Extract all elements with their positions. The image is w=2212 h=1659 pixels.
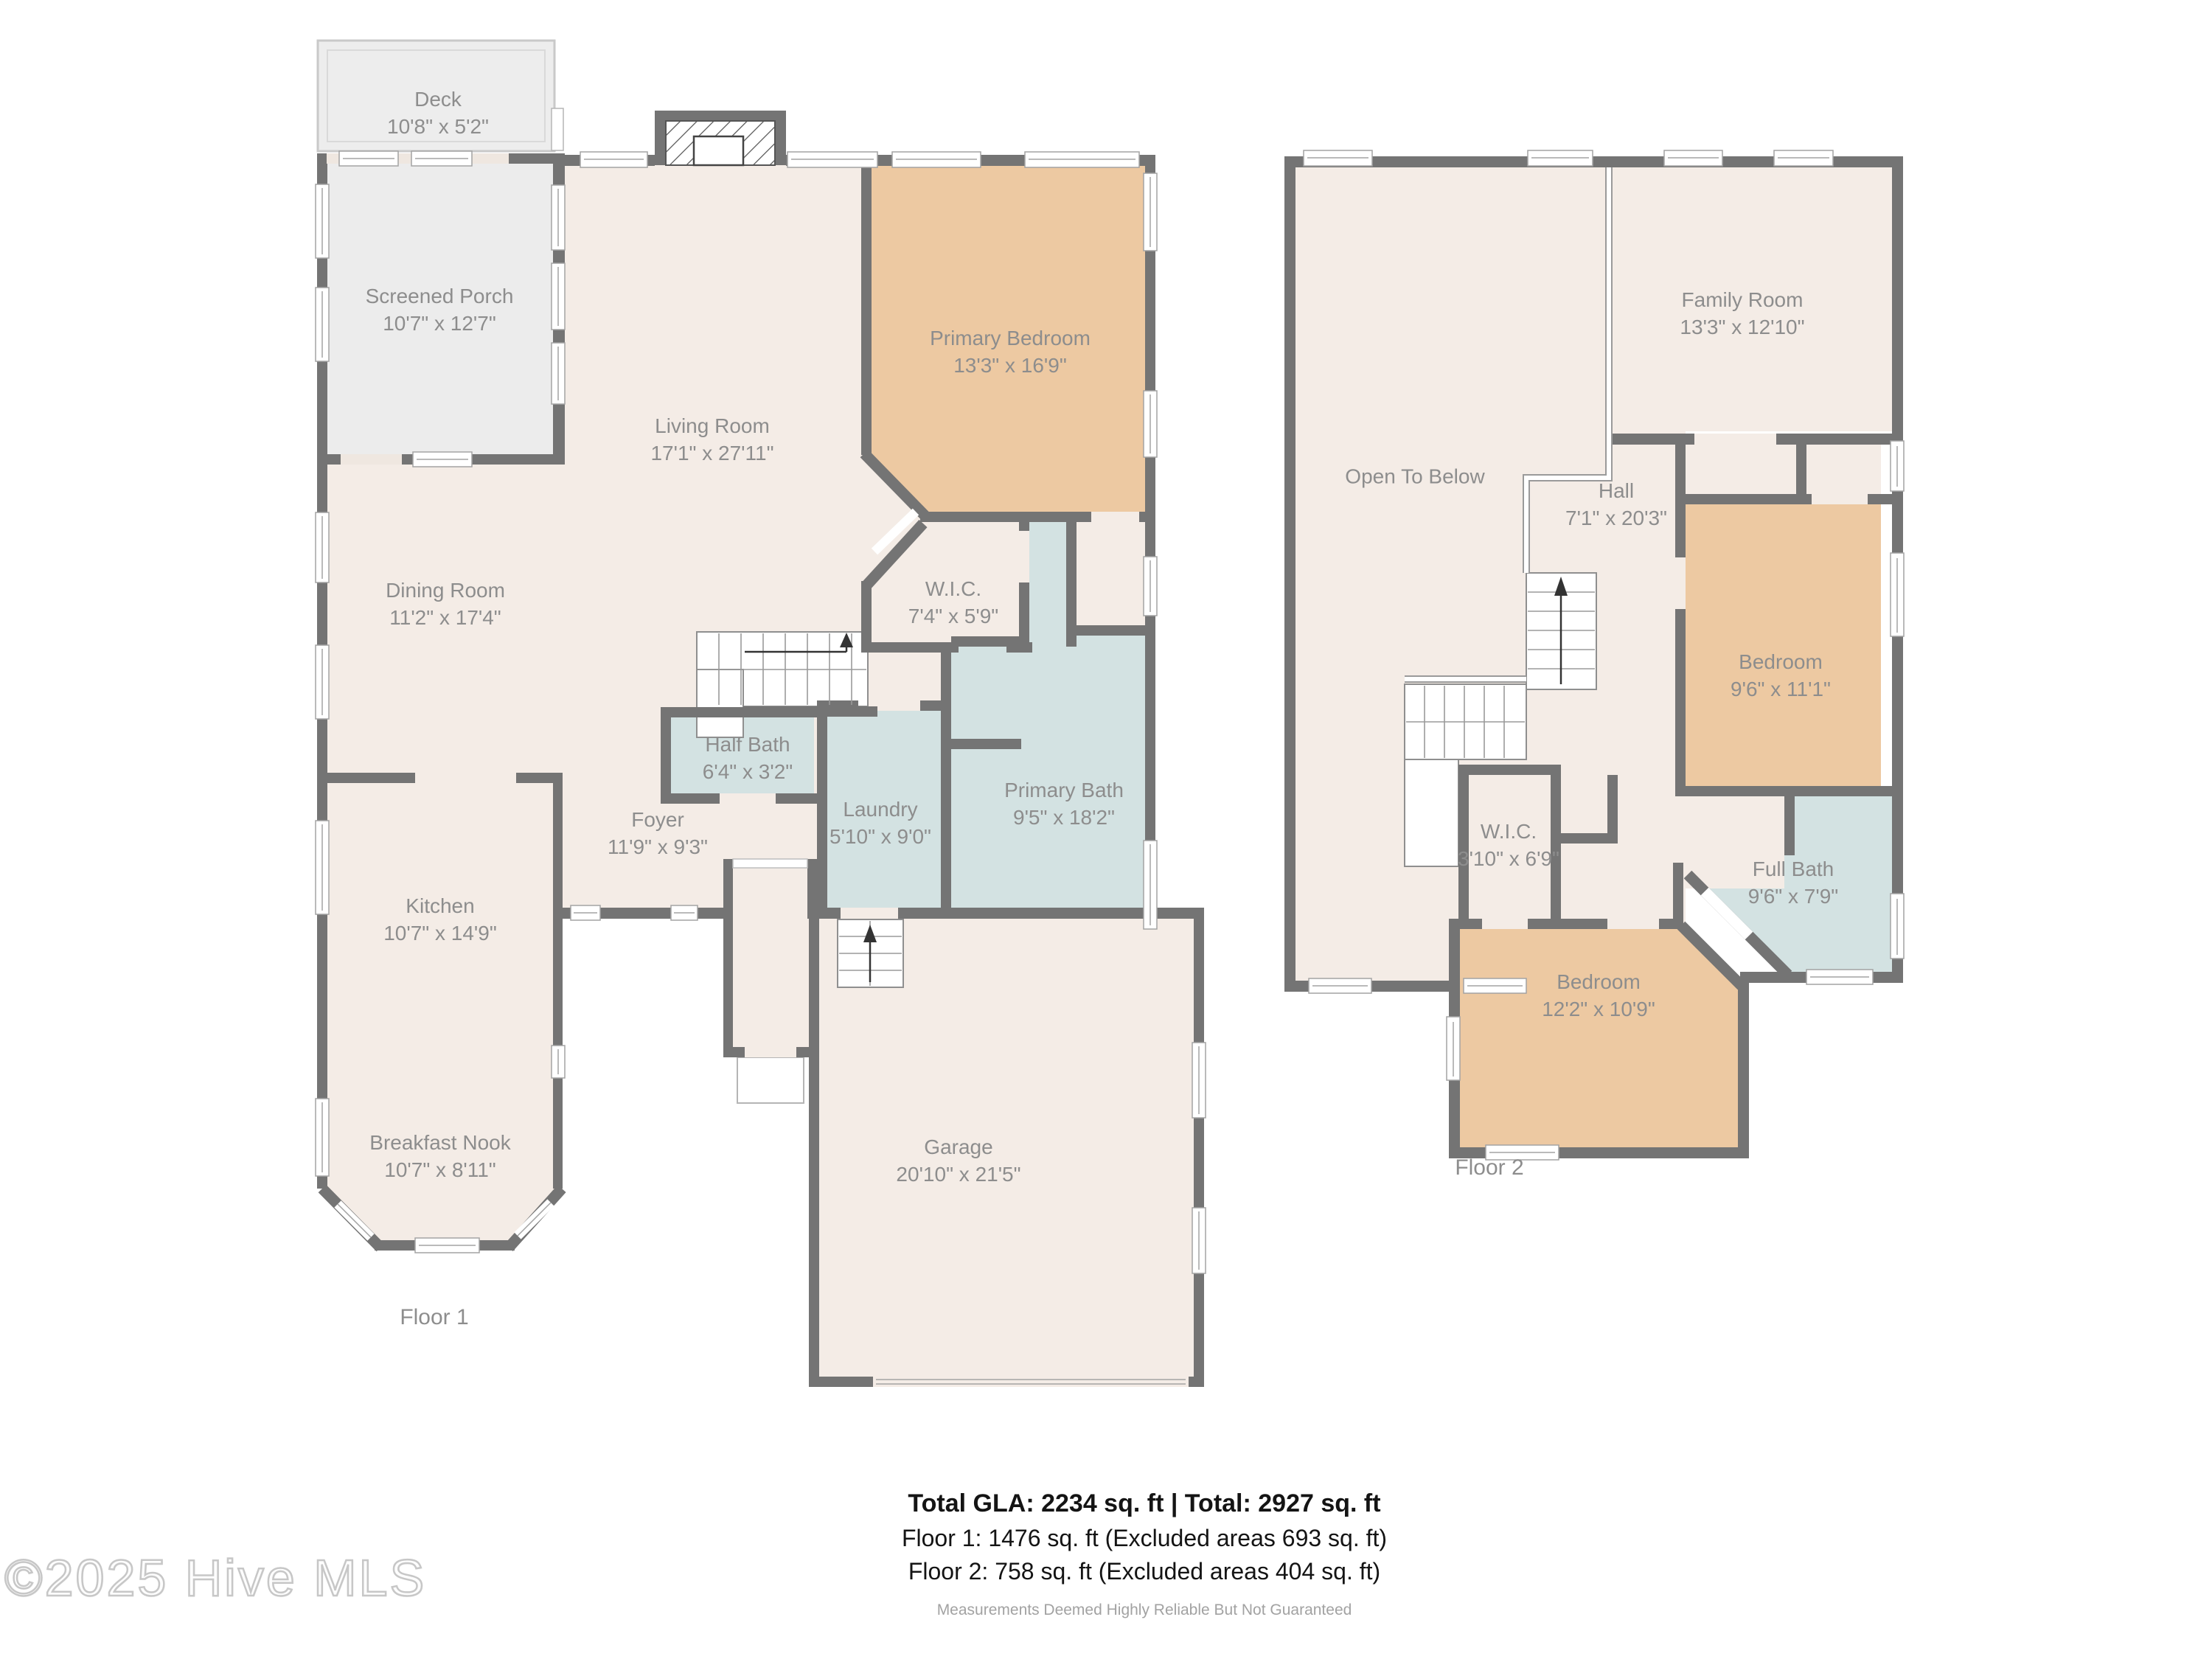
room-label-screened-porch: Screened Porch10'7" x 12'7" [366,283,514,338]
room-label-wic-floor2: W.I.C.3'10" x 6'9" [1458,818,1559,873]
room-label-deck: Deck10'8" x 5'2" [387,86,489,141]
stair-floor2-landing [1405,759,1458,866]
room-label-primary-bedroom: Primary Bedroom13'3" x 16'9" [930,325,1091,380]
room-label-dining-room: Dining Room11'2" x 17'4" [386,577,505,632]
front-stoop [737,1057,804,1103]
room-label-open-to-below: Open To Below [1345,464,1484,491]
room-label-family-room: Family Room13'3" x 12'10" [1680,287,1804,341]
room-label-laundry: Laundry5'10" x 9'0" [829,796,931,851]
room-label-wic-floor1: W.I.C.7'4" x 5'9" [908,576,998,630]
room-label-living-room: Living Room17'1" x 27'11" [650,413,773,467]
room-label-primary-bath: Primary Bath9'5" x 18'2" [1004,777,1124,832]
room-label-kitchen: Kitchen10'7" x 14'9" [383,893,497,947]
room-label-foyer: Foyer11'9" x 9'3" [608,807,708,861]
floor1-caption: Floor 1 [400,1305,468,1330]
room-label-breakfast-nook: Breakfast Nook10'7" x 8'11" [369,1130,510,1184]
room-label-full-bath: Full Bath9'6" x 7'9" [1748,856,1838,911]
total-gla-line: Total GLA: 2234 sq. ft | Total: 2927 sq.… [77,1489,2212,1518]
floorplan-page: { "floor1": { "caption": "Floor 1", "roo… [0,0,2212,1659]
room-label-garage: Garage20'10" x 21'5" [896,1134,1020,1189]
room-label-half-bath: Half Bath6'4" x 3'2" [703,731,793,786]
stair-floor1-landing [697,669,743,737]
bedroom1-fill [1686,504,1881,786]
bedroom2-fill [1460,929,1740,1147]
mls-watermark: ©2025 Hive MLS [4,1548,426,1607]
fireplace [655,111,786,165]
room-label-hall: Hall7'1" x 20'3" [1565,478,1667,532]
room-label-bedroom-2: Bedroom12'2" x 10'9" [1542,969,1655,1023]
room-label-bedroom-1: Bedroom9'6" x 11'1" [1731,649,1831,703]
floor2-caption: Floor 2 [1455,1155,1523,1180]
floor1-plan [316,41,1206,1387]
